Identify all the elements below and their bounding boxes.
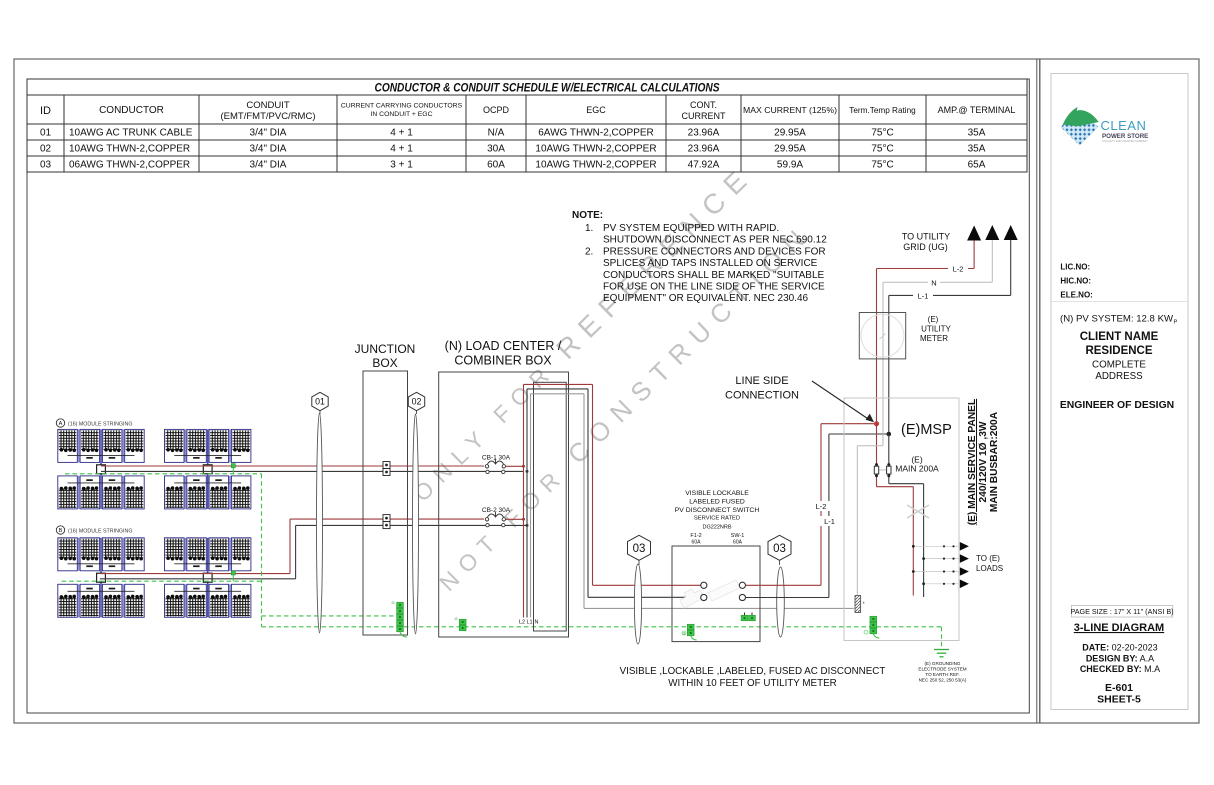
svg-text:(16) MODULE STRINGING: (16) MODULE STRINGING bbox=[68, 529, 132, 535]
svg-text:CB-1 30A: CB-1 30A bbox=[482, 455, 511, 462]
svg-text:N: N bbox=[931, 279, 936, 288]
svg-text:CONT.: CONT. bbox=[690, 100, 717, 110]
svg-text:(E) MAIN SERVICE PANEL: (E) MAIN SERVICE PANEL bbox=[967, 399, 978, 525]
svg-text:30A: 30A bbox=[487, 144, 505, 155]
svg-text:03: 03 bbox=[40, 160, 52, 171]
svg-text:10AWG AC TRUNK CABLE: 10AWG AC TRUNK CABLE bbox=[69, 128, 193, 139]
svg-text:4 + 1: 4 + 1 bbox=[390, 144, 413, 155]
svg-text:4 + 1: 4 + 1 bbox=[390, 128, 413, 139]
svg-text:N/A: N/A bbox=[488, 128, 505, 139]
svg-text:1.: 1. bbox=[585, 223, 593, 234]
svg-text:BOX: BOX bbox=[372, 356, 397, 370]
svg-text:3-LINE DIAGRAM: 3-LINE DIAGRAM bbox=[1074, 622, 1164, 634]
svg-text:(EMT/FMT/PVC/RMC): (EMT/FMT/PVC/RMC) bbox=[221, 111, 316, 122]
svg-text:DATE: 02-20-2023: DATE: 02-20-2023 bbox=[1082, 643, 1157, 653]
svg-text:(E) GROUNDING: (E) GROUNDING bbox=[925, 661, 961, 666]
svg-text:SERVICE RATED: SERVICE RATED bbox=[694, 516, 740, 522]
svg-text:LINE SIDE: LINE SIDE bbox=[735, 375, 788, 387]
svg-text:L-2: L-2 bbox=[953, 265, 964, 274]
svg-text:3 + 1: 3 + 1 bbox=[390, 160, 413, 171]
svg-text:(N) LOAD CENTER /: (N) LOAD CENTER / bbox=[445, 339, 562, 353]
svg-text:10AWG THWN-2,COPPER: 10AWG THWN-2,COPPER bbox=[69, 144, 190, 155]
svg-text:PV DISCONNECT SWITCH: PV DISCONNECT SWITCH bbox=[675, 507, 760, 514]
svg-text:23.96A: 23.96A bbox=[688, 144, 720, 155]
svg-text:ADDRESS: ADDRESS bbox=[1095, 371, 1143, 382]
svg-text:10AWG THWN-2,COPPER: 10AWG THWN-2,COPPER bbox=[535, 144, 656, 155]
svg-text:10AWG THWN-2,COPPER: 10AWG THWN-2,COPPER bbox=[535, 160, 656, 171]
svg-text:3/4" DIA: 3/4" DIA bbox=[250, 128, 287, 139]
svg-text:A QUALITY AND TRUSTED COMPANY: A QUALITY AND TRUSTED COMPANY bbox=[1102, 139, 1148, 143]
svg-text:60A: 60A bbox=[487, 160, 505, 171]
svg-text:TO EARTH REF.: TO EARTH REF. bbox=[925, 672, 959, 677]
svg-text:HIC.NO:: HIC.NO: bbox=[1060, 277, 1091, 286]
svg-text:TO UTILITY: TO UTILITY bbox=[902, 232, 950, 242]
svg-text:(E)MSP: (E)MSP bbox=[901, 422, 952, 438]
svg-text:ENGINEER OF DESIGN: ENGINEER OF DESIGN bbox=[1060, 400, 1174, 411]
svg-text:CURRENT CARRYING CONDUCTORS: CURRENT CARRYING CONDUCTORS bbox=[341, 103, 463, 110]
svg-text:35A: 35A bbox=[968, 128, 986, 139]
svg-text:CONDUCTOR: CONDUCTOR bbox=[99, 105, 164, 116]
svg-text:75°C: 75°C bbox=[871, 128, 893, 139]
svg-text:6AWG THWN-2,COPPER: 6AWG THWN-2,COPPER bbox=[538, 128, 654, 139]
svg-text:47.92A: 47.92A bbox=[688, 160, 720, 171]
svg-text:LOADS: LOADS bbox=[976, 564, 1003, 573]
svg-text:PAGE SIZE : 17" X 11" (ANSI B): PAGE SIZE : 17" X 11" (ANSI B) bbox=[1070, 607, 1173, 616]
svg-text:AMP.@ TERMINAL: AMP.@ TERMINAL bbox=[938, 105, 1016, 115]
svg-text:L-1: L-1 bbox=[918, 292, 929, 301]
svg-text:METER: METER bbox=[920, 334, 948, 343]
svg-text:WITHIN 10 FEET OF UTILITY METE: WITHIN 10 FEET OF UTILITY METER bbox=[668, 678, 836, 689]
svg-text:(N) PV SYSTEM: 12.8 KW: (N) PV SYSTEM: 12.8 KW bbox=[1060, 314, 1174, 325]
svg-text:SW-1: SW-1 bbox=[731, 533, 745, 539]
svg-text:DG222NRB: DG222NRB bbox=[702, 525, 731, 531]
svg-text:MAIN BUSBAR:200A: MAIN BUSBAR:200A bbox=[989, 411, 1000, 512]
svg-text:CONDUCTOR & CONDUIT SCHEDULE W: CONDUCTOR & CONDUIT SCHEDULE W/ELECTRICA… bbox=[375, 81, 721, 95]
svg-text:CLIENT NAME: CLIENT NAME bbox=[1080, 331, 1159, 343]
svg-text:02: 02 bbox=[40, 144, 52, 155]
svg-text:L2: L2 bbox=[519, 620, 525, 626]
svg-text:NOTE:: NOTE: bbox=[572, 210, 603, 221]
svg-text:LIC.NO:: LIC.NO: bbox=[1060, 263, 1090, 272]
svg-text:NEC 250 52, 250 53(A): NEC 250 52, 250 53(A) bbox=[919, 678, 967, 683]
svg-text:60A: 60A bbox=[733, 540, 743, 546]
svg-text:03: 03 bbox=[773, 543, 786, 555]
svg-text:(16) MODULE STRINGING: (16) MODULE STRINGING bbox=[68, 422, 132, 428]
svg-text:CURRENT: CURRENT bbox=[682, 111, 727, 121]
svg-text:CLEAN: CLEAN bbox=[1101, 118, 1147, 133]
svg-text:23.96A: 23.96A bbox=[688, 128, 720, 139]
svg-text:L1: L1 bbox=[526, 620, 532, 626]
svg-text:JUNCTION: JUNCTION bbox=[355, 342, 416, 356]
svg-text:CONDUCTORS SHALL BE MARKED "SU: CONDUCTORS SHALL BE MARKED "SUITABLE bbox=[603, 270, 825, 281]
svg-text:06AWG THWN-2,COPPER: 06AWG THWN-2,COPPER bbox=[69, 160, 190, 171]
svg-text:29.95A: 29.95A bbox=[774, 128, 806, 139]
svg-text:PRESSURE CONNECTORS AND DEVICE: PRESSURE CONNECTORS AND DEVICES FOR bbox=[603, 246, 826, 257]
svg-text:75°C: 75°C bbox=[871, 144, 893, 155]
svg-text:01: 01 bbox=[40, 128, 52, 139]
svg-text:(E): (E) bbox=[928, 315, 939, 324]
svg-text:ELE.NO:: ELE.NO: bbox=[1060, 291, 1092, 300]
svg-text:RESIDENCE: RESIDENCE bbox=[1085, 345, 1152, 357]
svg-text:FOR USE ON THE LINE SIDE OF TH: FOR USE ON THE LINE SIDE OF THE SERVICE bbox=[603, 282, 825, 293]
svg-text:GRID (UG): GRID (UG) bbox=[903, 242, 948, 252]
svg-text:SPLICES AND TAPS INSTALLED ON: SPLICES AND TAPS INSTALLED ON SERVICE bbox=[603, 258, 818, 269]
svg-text:UTILITY: UTILITY bbox=[921, 325, 951, 334]
svg-text:L-1: L-1 bbox=[824, 517, 835, 526]
svg-text:65A: 65A bbox=[968, 160, 986, 171]
svg-text:L-2: L-2 bbox=[816, 502, 827, 511]
svg-text:P: P bbox=[1174, 320, 1178, 326]
svg-text:VISIBLE LOCKABLE: VISIBLE LOCKABLE bbox=[685, 490, 749, 497]
svg-text:35A: 35A bbox=[968, 144, 986, 155]
svg-text:SHUTDOWN DISCONNECT AS PER NEC: SHUTDOWN DISCONNECT AS PER NEC 690.12 bbox=[603, 235, 827, 246]
svg-text:MAIN 200A: MAIN 200A bbox=[895, 464, 939, 474]
svg-text:ELECTRODE SYSTEM: ELECTRODE SYSTEM bbox=[918, 667, 966, 672]
svg-text:G: G bbox=[391, 600, 394, 605]
svg-text:3/4" DIA: 3/4" DIA bbox=[250, 144, 287, 155]
svg-text:CHECKED BY: M.A: CHECKED BY: M.A bbox=[1080, 664, 1160, 674]
svg-text:G: G bbox=[683, 632, 686, 636]
svg-text:29.95A: 29.95A bbox=[774, 144, 806, 155]
svg-text:3/4" DIA: 3/4" DIA bbox=[250, 160, 287, 171]
svg-text:60A: 60A bbox=[692, 540, 702, 546]
svg-text:COMBINER BOX: COMBINER BOX bbox=[454, 354, 552, 368]
svg-text:IN CONDUIT + EGC: IN CONDUIT + EGC bbox=[371, 111, 433, 118]
svg-text:02: 02 bbox=[412, 397, 422, 407]
svg-text:COMPLETE: COMPLETE bbox=[1092, 360, 1146, 371]
svg-text:F1-2: F1-2 bbox=[690, 533, 701, 539]
svg-text:G: G bbox=[454, 616, 457, 621]
svg-text:E-601: E-601 bbox=[1105, 682, 1133, 694]
svg-text:CONNECTION: CONNECTION bbox=[725, 390, 799, 402]
svg-text:TO (E): TO (E) bbox=[976, 554, 1000, 563]
svg-text:EQUIPMENT" OR EQUIVALENT. NEC: EQUIPMENT" OR EQUIVALENT. NEC 230.46 bbox=[603, 293, 809, 304]
svg-text:240/120V 1Ø ,3W: 240/120V 1Ø ,3W bbox=[978, 421, 989, 502]
svg-text:N: N bbox=[535, 620, 539, 626]
svg-text:CB-2 30A: CB-2 30A bbox=[482, 507, 511, 514]
svg-text:ID: ID bbox=[40, 105, 51, 117]
svg-text:2.: 2. bbox=[585, 246, 593, 257]
svg-text:VISIBLE ,LOCKABLE ,LABELED, FU: VISIBLE ,LOCKABLE ,LABELED, FUSED AC DIS… bbox=[620, 666, 886, 677]
svg-text:Term.Temp Rating: Term.Temp Rating bbox=[849, 106, 916, 115]
svg-text:SHEET-5: SHEET-5 bbox=[1097, 694, 1141, 706]
svg-text:03: 03 bbox=[633, 543, 646, 555]
svg-text:OCPD: OCPD bbox=[483, 105, 510, 115]
svg-text:LABELED FUSED: LABELED FUSED bbox=[689, 499, 745, 506]
svg-text:EGC: EGC bbox=[586, 105, 606, 115]
svg-text:MAX CURRENT (125%): MAX CURRENT (125%) bbox=[743, 105, 837, 115]
svg-text:75°C: 75°C bbox=[871, 160, 893, 171]
svg-text:B: B bbox=[59, 528, 63, 534]
svg-text:A: A bbox=[59, 421, 63, 427]
svg-text:01: 01 bbox=[315, 397, 325, 407]
svg-text:CONDUIT: CONDUIT bbox=[246, 100, 289, 111]
svg-text:PV SYSTEM EQUIPPED WITH RAPID.: PV SYSTEM EQUIPPED WITH RAPID. bbox=[603, 223, 779, 234]
svg-text:DESIGN BY: A.A: DESIGN BY: A.A bbox=[1086, 653, 1154, 663]
svg-text:59.9A: 59.9A bbox=[777, 160, 803, 171]
